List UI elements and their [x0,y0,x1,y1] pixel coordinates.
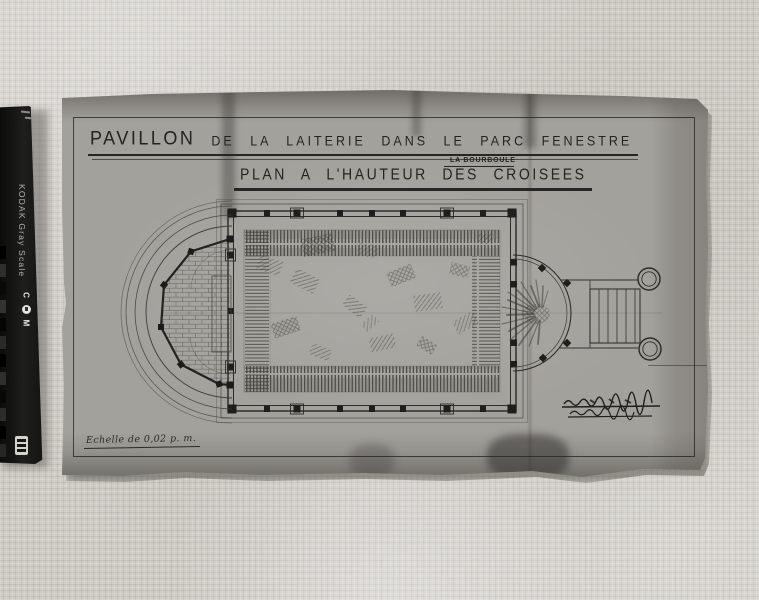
gray-patch [0,426,6,439]
ruler-mark-y-circle [22,305,31,314]
gray-patch [0,354,6,367]
archive-photograph: KODAK Gray Scale C M [0,0,759,600]
ruler-mark-m: M [22,318,32,329]
ruler-top-dash [25,117,32,119]
drawing-sheet: PAVILLON DE LA LAITERIE DANS LE PARC FEN… [62,88,708,478]
floor-plan-drawing [62,88,708,478]
gray-patch [0,336,6,349]
gray-patch [0,444,6,457]
apse [158,236,234,389]
signature-scribble [562,390,660,420]
gray-patch [0,282,6,295]
pedestal-columns [638,268,661,360]
ruler-top-dash [21,111,30,114]
gray-patch [0,372,6,385]
gray-patch [0,408,6,421]
gray-patch [0,390,6,403]
gray-patch [0,318,6,331]
ruler-barcode-mark [15,436,28,455]
ruler-mark-c: C [22,290,32,301]
gray-patch [0,246,6,259]
gray-patch [0,264,6,277]
scale-note: Echelle de 0,02 p. m. [86,433,196,446]
gray-patch [0,300,6,313]
ruler-label: KODAK Gray Scale [17,184,27,294]
